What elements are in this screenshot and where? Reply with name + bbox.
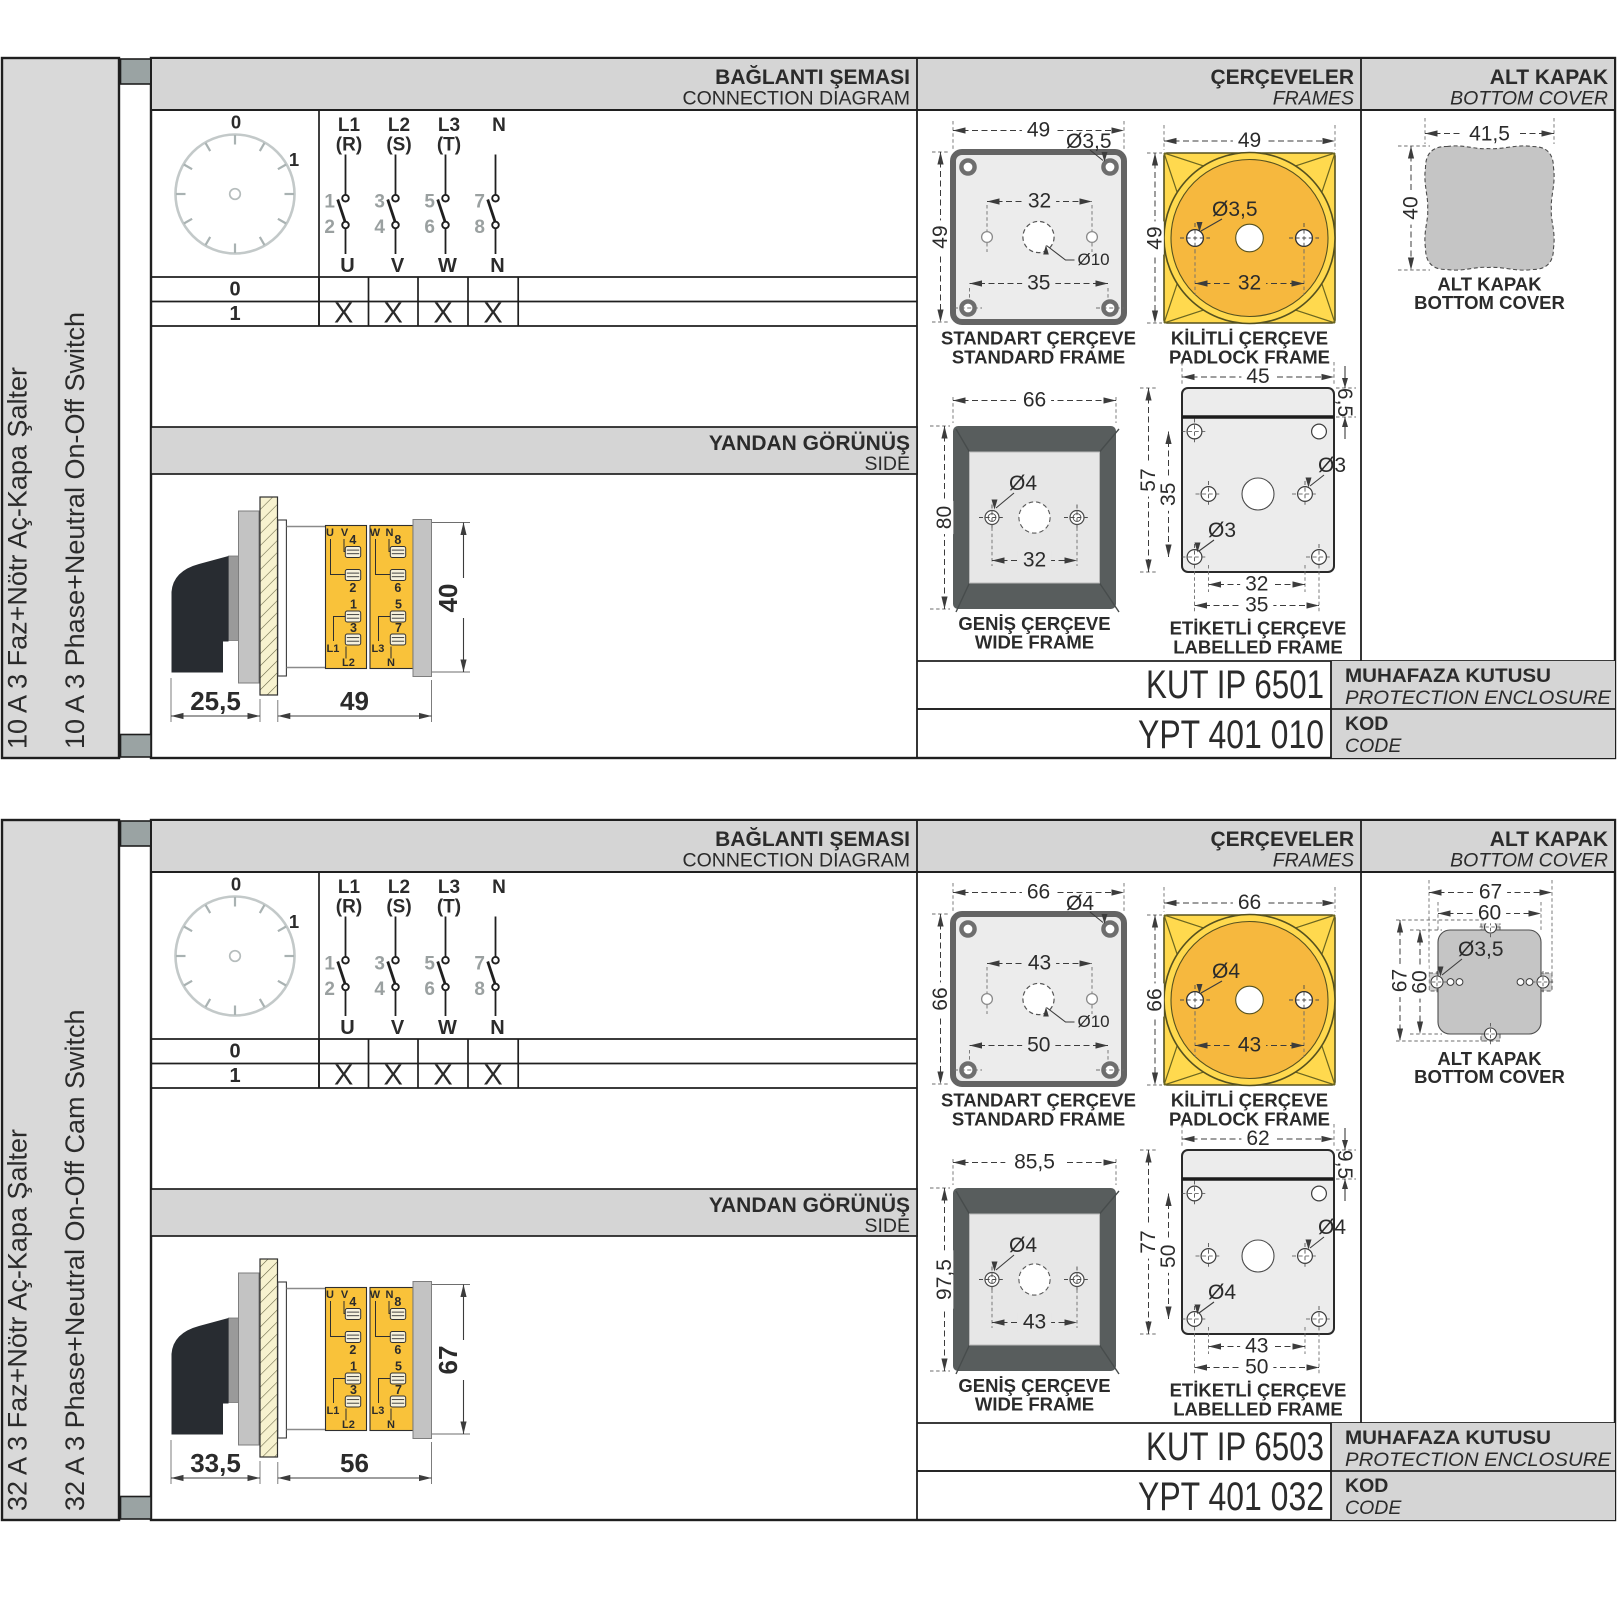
svg-text:41,5: 41,5 — [1469, 123, 1510, 146]
svg-text:(T): (T) — [437, 897, 461, 918]
svg-text:KUT IP 6503: KUT IP 6503 — [1146, 1425, 1324, 1469]
svg-text:KOD: KOD — [1345, 713, 1388, 735]
svg-text:PROTECTION ENCLOSURE: PROTECTION ENCLOSURE — [1345, 1449, 1612, 1471]
svg-text:KOD: KOD — [1345, 1475, 1388, 1497]
svg-text:(S): (S) — [386, 897, 411, 918]
svg-text:3: 3 — [350, 1383, 357, 1397]
svg-text:5: 5 — [395, 598, 402, 612]
svg-text:7: 7 — [395, 1383, 402, 1397]
svg-text:Ø4: Ø4 — [1009, 472, 1037, 495]
svg-text:STANDARD FRAME: STANDARD FRAME — [952, 1109, 1125, 1130]
svg-text:YANDAN GÖRÜNÜŞ: YANDAN GÖRÜNÜŞ — [709, 432, 910, 455]
svg-text:43: 43 — [1245, 1334, 1268, 1357]
svg-text:W: W — [370, 1289, 381, 1301]
svg-text:N: N — [387, 1419, 395, 1431]
svg-text:9,5: 9,5 — [1333, 1150, 1356, 1179]
svg-text:5: 5 — [424, 192, 435, 213]
svg-text:1: 1 — [324, 954, 335, 975]
svg-text:X: X — [483, 1060, 502, 1092]
svg-text:U: U — [326, 527, 334, 539]
svg-text:0: 0 — [229, 279, 240, 301]
svg-text:66: 66 — [1023, 388, 1046, 411]
svg-text:Ø3: Ø3 — [1318, 454, 1346, 477]
svg-text:35: 35 — [1157, 483, 1180, 506]
svg-text:L2: L2 — [388, 115, 410, 136]
svg-text:1: 1 — [229, 1065, 240, 1087]
svg-text:7: 7 — [474, 192, 485, 213]
svg-text:4: 4 — [374, 979, 385, 1000]
svg-text:Ø4: Ø4 — [1212, 960, 1240, 983]
svg-text:Ø4: Ø4 — [1066, 892, 1094, 915]
svg-text:1: 1 — [229, 303, 240, 325]
svg-text:BAĞLANTI ŞEMASI: BAĞLANTI ŞEMASI — [715, 827, 910, 851]
svg-text:32 A 3 Faz+Nötr Aç-Kapa Şalter: 32 A 3 Faz+Nötr Aç-Kapa Şalter — [3, 1129, 33, 1511]
svg-text:Ø4: Ø4 — [1318, 1216, 1346, 1239]
svg-text:N: N — [387, 657, 395, 669]
svg-text:33,5: 33,5 — [190, 1448, 241, 1478]
svg-text:1: 1 — [289, 911, 299, 932]
svg-text:FRAMES: FRAMES — [1273, 850, 1354, 872]
svg-text:L3: L3 — [438, 877, 460, 898]
svg-text:6: 6 — [424, 217, 435, 238]
svg-text:X: X — [483, 298, 502, 330]
svg-text:1: 1 — [289, 149, 299, 170]
svg-text:Ø10: Ø10 — [1078, 250, 1110, 269]
svg-text:49: 49 — [1143, 226, 1166, 249]
svg-text:50: 50 — [1157, 1245, 1180, 1268]
svg-text:6: 6 — [394, 1343, 401, 1357]
svg-text:32: 32 — [1238, 271, 1261, 294]
svg-text:BOTTOM COVER: BOTTOM COVER — [1414, 292, 1565, 313]
svg-text:WIDE FRAME: WIDE FRAME — [975, 632, 1094, 653]
svg-text:60: 60 — [1478, 901, 1501, 924]
svg-text:1: 1 — [350, 598, 357, 612]
svg-text:1: 1 — [324, 192, 335, 213]
svg-text:3: 3 — [374, 954, 385, 975]
svg-text:40: 40 — [1399, 196, 1422, 219]
svg-text:L3: L3 — [438, 115, 460, 136]
svg-text:MUHAFAZA KUTUSU: MUHAFAZA KUTUSU — [1345, 1427, 1551, 1449]
svg-text:L1: L1 — [338, 877, 361, 898]
svg-text:U: U — [340, 255, 354, 277]
svg-text:BOTTOM COVER: BOTTOM COVER — [1450, 88, 1608, 110]
svg-text:V: V — [391, 1017, 405, 1039]
svg-text:YPT 401 010: YPT 401 010 — [1138, 713, 1324, 757]
svg-text:67: 67 — [1479, 880, 1502, 903]
svg-text:N: N — [386, 1289, 394, 1301]
svg-text:Ø3,5: Ø3,5 — [1458, 938, 1504, 961]
svg-text:45: 45 — [1246, 365, 1269, 388]
svg-text:7: 7 — [474, 954, 485, 975]
svg-text:8: 8 — [474, 979, 485, 1000]
svg-text:(S): (S) — [386, 135, 411, 156]
svg-text:32: 32 — [1245, 572, 1268, 595]
svg-text:35: 35 — [1245, 593, 1268, 616]
svg-text:LABELLED FRAME: LABELLED FRAME — [1173, 1399, 1343, 1420]
svg-text:66: 66 — [1143, 988, 1166, 1011]
svg-text:N: N — [492, 115, 506, 136]
svg-text:MUHAFAZA KUTUSU: MUHAFAZA KUTUSU — [1345, 665, 1551, 687]
svg-text:32: 32 — [1023, 548, 1046, 571]
svg-text:5: 5 — [395, 1360, 402, 1374]
svg-text:56: 56 — [340, 1448, 369, 1478]
svg-text:60: 60 — [1408, 970, 1431, 993]
svg-text:KUT IP 6501: KUT IP 6501 — [1146, 663, 1324, 707]
svg-text:50: 50 — [1027, 1033, 1050, 1056]
svg-text:66: 66 — [1238, 891, 1261, 914]
svg-text:STANDART ÇERÇEVE: STANDART ÇERÇEVE — [941, 1090, 1136, 1111]
svg-text:32: 32 — [1028, 189, 1051, 212]
svg-text:0: 0 — [229, 1041, 240, 1063]
svg-text:SIDE: SIDE — [864, 453, 910, 475]
svg-text:10 A 3 Faz+Nötr Aç-Kapa Şalter: 10 A 3 Faz+Nötr Aç-Kapa Şalter — [3, 367, 33, 749]
svg-text:U: U — [326, 1289, 334, 1301]
svg-text:N: N — [386, 527, 394, 539]
svg-text:62: 62 — [1246, 1127, 1269, 1150]
svg-text:Ø3,5: Ø3,5 — [1066, 130, 1112, 153]
svg-text:V: V — [341, 1289, 349, 1301]
svg-text:W: W — [438, 1017, 457, 1039]
svg-text:43: 43 — [1028, 951, 1051, 974]
svg-text:80: 80 — [933, 506, 956, 529]
svg-text:BOTTOM COVER: BOTTOM COVER — [1450, 850, 1608, 872]
svg-text:L1: L1 — [327, 1405, 340, 1417]
svg-text:43: 43 — [1238, 1033, 1261, 1056]
svg-text:CODE: CODE — [1345, 735, 1402, 757]
svg-text:4: 4 — [374, 217, 385, 238]
svg-text:X: X — [334, 1060, 353, 1092]
svg-text:N: N — [492, 877, 506, 898]
svg-text:W: W — [370, 527, 381, 539]
svg-text:BOTTOM COVER: BOTTOM COVER — [1414, 1066, 1565, 1087]
svg-text:3: 3 — [350, 621, 357, 635]
svg-text:25,5: 25,5 — [190, 686, 241, 716]
svg-text:FRAMES: FRAMES — [1273, 88, 1354, 110]
svg-text:1: 1 — [350, 1360, 357, 1374]
svg-text:SIDE: SIDE — [864, 1215, 910, 1237]
svg-text:YPT 401 032: YPT 401 032 — [1138, 1475, 1324, 1519]
svg-text:ALT KAPAK: ALT KAPAK — [1490, 828, 1608, 851]
svg-text:49: 49 — [1238, 129, 1261, 152]
svg-text:N: N — [490, 255, 504, 277]
svg-text:50: 50 — [1245, 1355, 1268, 1378]
svg-text:Ø10: Ø10 — [1078, 1012, 1110, 1031]
svg-text:(R): (R) — [336, 135, 362, 156]
svg-text:ETİKETLİ ÇERÇEVE: ETİKETLİ ÇERÇEVE — [1170, 618, 1347, 639]
svg-text:L1: L1 — [327, 643, 340, 655]
svg-text:6: 6 — [424, 979, 435, 1000]
svg-text:ETİKETLİ ÇERÇEVE: ETİKETLİ ÇERÇEVE — [1170, 1380, 1347, 1401]
svg-text:4: 4 — [349, 1295, 356, 1309]
svg-text:KİLİTLİ ÇERÇEVE: KİLİTLİ ÇERÇEVE — [1171, 1090, 1328, 1111]
svg-text:40: 40 — [433, 584, 463, 613]
svg-text:8: 8 — [474, 217, 485, 238]
svg-text:L2: L2 — [342, 1419, 355, 1431]
svg-text:N: N — [490, 1017, 504, 1039]
svg-text:49: 49 — [1027, 118, 1050, 141]
svg-text:Ø4: Ø4 — [1208, 1281, 1236, 1304]
svg-text:L2: L2 — [342, 657, 355, 669]
svg-text:L3: L3 — [372, 1405, 385, 1417]
svg-text:32 A 3 Phase+Neutral On-Off Ca: 32 A 3 Phase+Neutral On-Off Cam Switch — [60, 1009, 90, 1511]
svg-text:2: 2 — [324, 217, 335, 238]
svg-text:W: W — [438, 255, 457, 277]
svg-text:8: 8 — [394, 1295, 401, 1309]
svg-text:X: X — [433, 1060, 452, 1092]
svg-text:7: 7 — [395, 621, 402, 635]
svg-text:L1: L1 — [338, 115, 361, 136]
svg-text:66: 66 — [1027, 880, 1050, 903]
svg-text:X: X — [384, 1060, 403, 1092]
svg-text:67: 67 — [433, 1346, 463, 1375]
svg-text:66: 66 — [929, 987, 952, 1010]
svg-text:2: 2 — [349, 581, 356, 595]
svg-text:0: 0 — [231, 112, 241, 133]
svg-text:WIDE FRAME: WIDE FRAME — [975, 1394, 1094, 1415]
svg-text:6: 6 — [394, 581, 401, 595]
svg-text:BAĞLANTI ŞEMASI: BAĞLANTI ŞEMASI — [715, 65, 910, 89]
svg-text:ALT KAPAK: ALT KAPAK — [1490, 66, 1608, 89]
svg-text:(R): (R) — [336, 897, 362, 918]
svg-text:ÇERÇEVELER: ÇERÇEVELER — [1210, 66, 1354, 89]
svg-text:Ø3,5: Ø3,5 — [1212, 198, 1258, 221]
svg-text:3: 3 — [374, 192, 385, 213]
svg-text:CONNECTION DIAGRAM: CONNECTION DIAGRAM — [682, 88, 910, 110]
svg-text:Ø3: Ø3 — [1208, 519, 1236, 542]
svg-text:LABELLED FRAME: LABELLED FRAME — [1173, 637, 1343, 658]
svg-text:CODE: CODE — [1345, 1497, 1402, 1519]
svg-text:X: X — [384, 298, 403, 330]
svg-text:97,5: 97,5 — [933, 1259, 956, 1300]
svg-text:Ø4: Ø4 — [1009, 1234, 1037, 1257]
svg-text:L2: L2 — [388, 877, 410, 898]
svg-text:0: 0 — [231, 874, 241, 895]
svg-text:4: 4 — [349, 533, 356, 547]
svg-text:U: U — [340, 1017, 354, 1039]
svg-text:35: 35 — [1027, 271, 1050, 294]
svg-text:85,5: 85,5 — [1014, 1150, 1055, 1173]
svg-text:2: 2 — [324, 979, 335, 1000]
svg-text:ÇERÇEVELER: ÇERÇEVELER — [1210, 828, 1354, 851]
svg-text:YANDAN GÖRÜNÜŞ: YANDAN GÖRÜNÜŞ — [709, 1194, 910, 1217]
svg-text:5: 5 — [424, 954, 435, 975]
svg-text:(T): (T) — [437, 135, 461, 156]
svg-text:X: X — [334, 298, 353, 330]
svg-text:6,5: 6,5 — [1333, 388, 1356, 417]
svg-text:10 A 3 Phase+Neutral On-Off Sw: 10 A 3 Phase+Neutral On-Off Switch — [60, 312, 90, 749]
svg-text:V: V — [391, 255, 405, 277]
svg-text:STANDART ÇERÇEVE: STANDART ÇERÇEVE — [941, 328, 1136, 349]
svg-text:X: X — [433, 298, 452, 330]
svg-text:2: 2 — [349, 1343, 356, 1357]
svg-text:PROTECTION ENCLOSURE: PROTECTION ENCLOSURE — [1345, 687, 1612, 709]
svg-text:CONNECTION DIAGRAM: CONNECTION DIAGRAM — [682, 850, 910, 872]
svg-text:43: 43 — [1023, 1310, 1046, 1333]
svg-text:V: V — [341, 527, 349, 539]
svg-text:L3: L3 — [372, 643, 385, 655]
svg-text:49: 49 — [929, 225, 952, 248]
svg-text:STANDARD FRAME: STANDARD FRAME — [952, 347, 1125, 368]
svg-text:49: 49 — [340, 686, 369, 716]
svg-text:KİLİTLİ ÇERÇEVE: KİLİTLİ ÇERÇEVE — [1171, 328, 1328, 349]
svg-text:8: 8 — [394, 533, 401, 547]
